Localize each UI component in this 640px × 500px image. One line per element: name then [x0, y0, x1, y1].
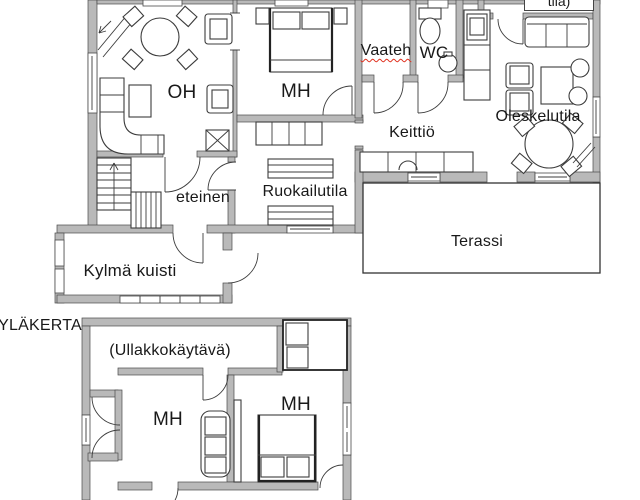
- room-label-attic-corridor: (Ullakkokäytävä): [109, 342, 230, 360]
- armchair: [506, 63, 533, 88]
- blanket: [287, 347, 308, 368]
- room-label-lounge: Oleskelutila: [495, 108, 580, 126]
- room-label-bedroom-upper-left: MH: [153, 409, 183, 431]
- lounge-furniture: [506, 17, 595, 177]
- toilet-bowl: [420, 18, 440, 44]
- sofa-upper: [201, 411, 230, 477]
- flue-duct: [234, 400, 241, 482]
- pillow: [286, 323, 308, 345]
- armchair: [207, 85, 233, 113]
- cutoff-room-label-box: tila): [524, 0, 594, 11]
- room-label-terrace: Terassi: [451, 233, 503, 251]
- pillow: [261, 457, 284, 477]
- room-label-kitchen: Keittiö: [389, 124, 435, 142]
- sofa: [525, 17, 589, 47]
- upper-floor-heading: YLÄKERTA: [0, 317, 82, 335]
- living-room-furniture: [98, 6, 233, 154]
- pillow: [273, 12, 300, 29]
- pouf: [569, 87, 587, 105]
- coffee-table: [129, 85, 151, 117]
- toilet-tank: [419, 8, 441, 19]
- dining-bench: [268, 206, 333, 225]
- room-label-living-room: OH: [168, 82, 197, 104]
- room-label-bedroom-upper-right: MH: [281, 394, 311, 416]
- nightstand: [256, 8, 269, 24]
- round-dining-table: [141, 18, 179, 56]
- room-label-wc: WC: [420, 43, 449, 63]
- room-label-closet: Vaateh: [361, 42, 412, 60]
- stairs: [97, 158, 161, 228]
- cutoff-room-label: tila): [548, 0, 571, 9]
- room-label-dining: Ruokailutila: [262, 183, 347, 201]
- terrace-outline: [363, 183, 600, 273]
- floorplan-drawing: [0, 0, 640, 500]
- tall-cabinets: [464, 10, 490, 100]
- side-table: [541, 67, 573, 104]
- room-label-cold-porch: Kylmä kuisti: [83, 261, 176, 281]
- floorplan-image: OH MH Vaateh WC Keittiö Oleskelutila Ruo…: [0, 0, 640, 500]
- wardrobes: [256, 122, 322, 145]
- room-label-bedroom: MH: [281, 81, 311, 103]
- pillow: [287, 457, 309, 477]
- room-label-hallway: eteinen: [176, 189, 230, 207]
- armchair: [205, 14, 232, 44]
- nightstand: [334, 8, 347, 24]
- pillow: [302, 12, 329, 29]
- single-bed: [283, 320, 347, 370]
- double-bed-upper: [258, 415, 316, 482]
- dining-table-long: [268, 159, 333, 178]
- pouf: [571, 59, 589, 77]
- bedroom-ground-furniture: [256, 8, 347, 145]
- kitchen-counter: [360, 152, 473, 172]
- stove: [206, 130, 229, 151]
